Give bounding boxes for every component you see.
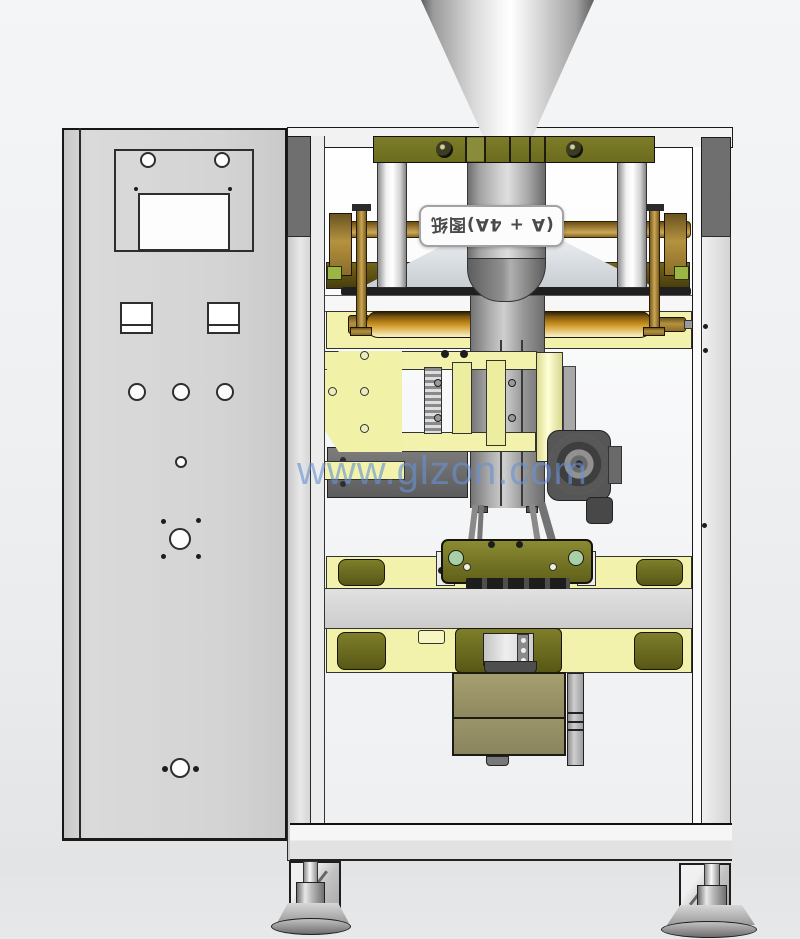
cabinet-door-seam <box>79 128 81 840</box>
carriage-beam <box>318 588 694 629</box>
jaw-top-bolt <box>516 541 523 548</box>
clamp-pad-right <box>674 266 689 280</box>
panel-button <box>172 383 190 401</box>
panel-button <box>216 383 234 401</box>
hanger-rod-left-foot <box>350 327 372 336</box>
plate-bolt <box>360 351 369 360</box>
column-bolt <box>703 348 708 353</box>
handle-pin <box>193 766 199 772</box>
bar-bolt <box>460 350 468 358</box>
frame-column-left-dark <box>287 136 311 238</box>
jaw-band-block-left <box>337 632 386 670</box>
head-plate-joint <box>484 137 486 162</box>
bar-bolt <box>441 350 449 358</box>
hanger-rod-left <box>356 206 367 334</box>
foot-pad <box>271 918 351 935</box>
plate-bolt <box>360 424 369 433</box>
jaw-white-dot <box>549 563 557 571</box>
mech-bolt <box>508 379 516 387</box>
flange-bolt <box>196 554 201 559</box>
clamp-pad-left <box>327 266 342 280</box>
head-plate-bolt <box>436 141 453 158</box>
pull-belt-left <box>452 362 472 434</box>
guide-cylinder-left <box>377 162 407 288</box>
jaw-white-dot <box>463 563 471 571</box>
plate-bolt <box>360 387 369 396</box>
chute-tab <box>486 756 509 766</box>
cabinet-door-handle <box>170 758 190 778</box>
jaw-band-tab <box>418 630 445 644</box>
view-label: (A + 4A)图纸 <box>419 205 564 247</box>
panel-lamp-left <box>140 152 156 168</box>
plate-bolt <box>328 387 337 396</box>
jaw-top-bolt <box>488 541 495 548</box>
rocker-divider <box>122 324 151 326</box>
hanger-rod-right-cap <box>645 204 664 211</box>
watermark: www.glzon.com <box>297 449 588 494</box>
cabinet-bottom-edge <box>62 838 287 841</box>
frame-column-right-dark <box>701 137 731 238</box>
hanger-rod-right-foot <box>643 327 665 336</box>
blower-arm <box>608 446 622 484</box>
jaw-band-block-right <box>634 632 683 670</box>
flange-bolt <box>161 519 166 524</box>
leveling-foot-right <box>655 857 765 939</box>
head-plate-joint <box>529 137 531 162</box>
head-plate-joint <box>509 137 511 162</box>
rocker-switch-right <box>207 302 240 334</box>
seal-band-block-left <box>338 559 385 586</box>
leveling-foot-left <box>265 855 360 939</box>
gear-rack <box>424 367 442 434</box>
discharge-chute-upper <box>452 672 566 719</box>
flange-bolt <box>196 518 201 523</box>
guide-cylinder-right <box>617 162 647 288</box>
jaw-teeth-strip <box>466 578 570 589</box>
hanger-rod-right <box>649 206 660 334</box>
handle-pin <box>162 766 168 772</box>
strip-joint <box>568 729 583 731</box>
head-plate-joint <box>544 137 546 162</box>
discharge-chute-lower <box>452 719 566 756</box>
panel-button <box>128 383 146 401</box>
frame-column-right <box>701 236 731 858</box>
head-plate-joint <box>465 137 467 162</box>
panel-lamp-right <box>214 152 230 168</box>
strip-joint <box>568 721 583 723</box>
mech-bolt <box>434 379 442 387</box>
pull-belt-right <box>486 360 506 446</box>
frame-column-left-side <box>311 136 325 861</box>
frame-column-right-strip <box>692 147 701 858</box>
strip-joint <box>568 712 583 714</box>
foot-nut <box>296 882 325 906</box>
bolt-strip-dot <box>521 648 526 653</box>
head-plate-segment <box>467 138 484 161</box>
mech-bolt <box>508 414 516 422</box>
jaw-green-bushing <box>568 550 584 566</box>
belt-tension-plate <box>322 351 402 452</box>
blower-bracket <box>586 497 613 524</box>
rocker-divider <box>209 324 238 326</box>
column-bolt <box>703 324 708 329</box>
head-plate <box>373 136 655 163</box>
column-bolt <box>702 523 707 528</box>
head-plate-bolt <box>566 141 583 158</box>
panel-pin <box>134 187 138 191</box>
frame-column-left <box>287 236 311 861</box>
hanger-rod-left-cap <box>352 204 371 211</box>
view-label-text: (A + 4A)图纸 <box>430 214 554 239</box>
foot-pad <box>661 921 757 938</box>
jaw-green-bushing <box>448 550 464 566</box>
cabinet-flange-hole <box>169 528 191 550</box>
chute-side-strip <box>567 673 584 766</box>
flange-bolt <box>161 554 166 559</box>
panel-pin <box>228 187 232 191</box>
cabinet-small-hole <box>175 456 187 468</box>
vffs-machine-render: (A + 4A)图纸 www.glzon.com <box>0 0 800 939</box>
hmi-screen <box>138 193 230 251</box>
seal-band-block-right <box>636 559 683 586</box>
feed-funnel <box>421 0 594 136</box>
bolt-strip-dot <box>521 638 526 643</box>
mech-bolt <box>434 414 442 422</box>
rocker-switch-left <box>120 302 153 334</box>
